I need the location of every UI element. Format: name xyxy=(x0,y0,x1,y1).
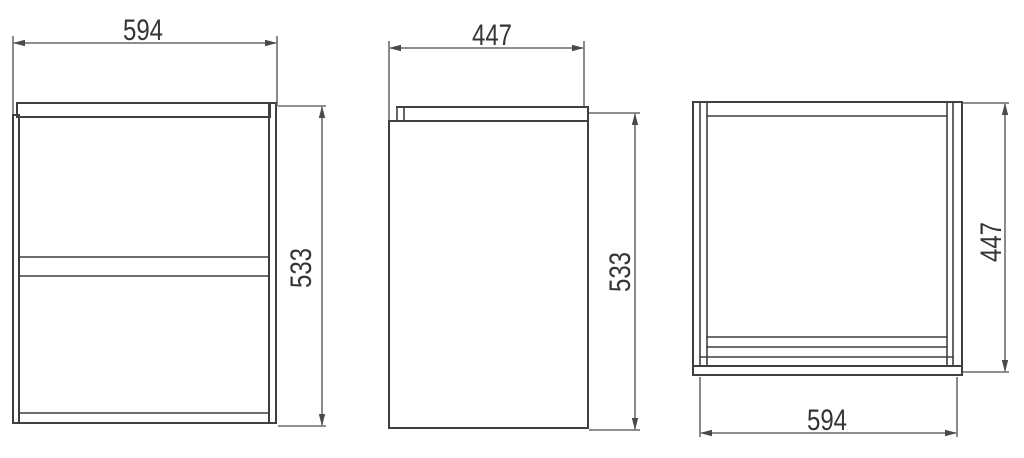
dimension-arrow-down xyxy=(1002,360,1008,372)
front-width-dimension-label: 594 xyxy=(123,12,163,46)
front-right-side-edge xyxy=(269,103,276,423)
dimension-arrow-down xyxy=(319,414,325,426)
dimension-arrow-right xyxy=(572,45,584,51)
dimension-arrow-up xyxy=(632,113,638,125)
top-depth-dimension-label: 447 xyxy=(973,222,1007,262)
top-width-dimension: 594 xyxy=(700,377,957,437)
dimension-arrow-up xyxy=(1002,103,1008,115)
technical-drawing-canvas: 594 533 447 xyxy=(0,0,1024,458)
dimension-arrow-up xyxy=(319,106,325,118)
dimension-arrow-right xyxy=(945,430,957,436)
top-view: 447 594 xyxy=(693,102,1009,437)
front-height-dimension-label: 533 xyxy=(283,248,317,288)
top-outer-outline xyxy=(693,102,962,375)
dimension-arrow-down xyxy=(632,418,638,430)
side-depth-dimension: 447 xyxy=(389,17,584,120)
side-depth-dimension-label: 447 xyxy=(472,17,512,51)
front-height-dimension: 533 xyxy=(278,106,326,426)
side-height-dimension-label: 533 xyxy=(602,252,636,292)
dimension-arrow-left xyxy=(389,45,401,51)
front-left-side-edge xyxy=(13,115,19,423)
top-width-dimension-label: 594 xyxy=(807,402,847,436)
front-view: 594 533 xyxy=(13,12,326,426)
dimension-arrow-right xyxy=(265,40,277,46)
front-top-panel xyxy=(17,103,270,117)
dimension-arrow-left xyxy=(700,430,712,436)
top-depth-dimension: 447 xyxy=(963,103,1009,372)
side-view: 447 533 xyxy=(389,17,640,430)
side-height-dimension: 533 xyxy=(589,113,640,430)
cabinet-drawing: 594 533 447 xyxy=(0,0,1024,458)
dimension-arrow-left xyxy=(13,40,25,46)
front-width-dimension: 594 xyxy=(13,12,277,115)
